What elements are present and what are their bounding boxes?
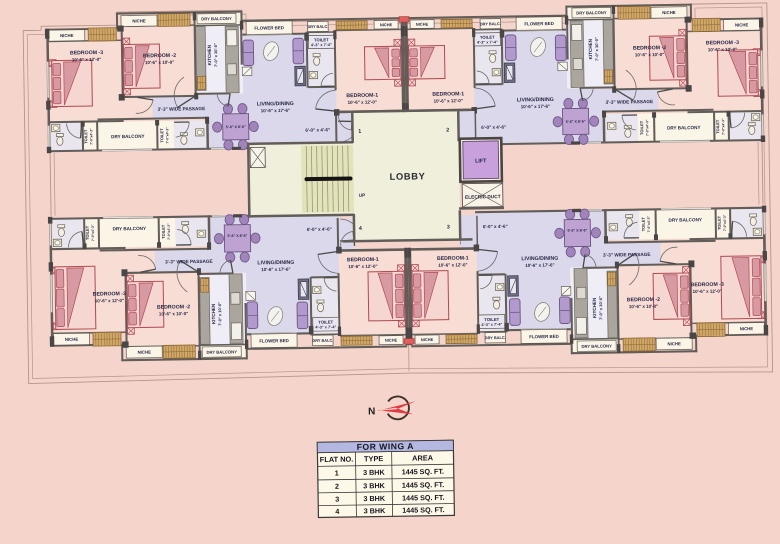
svg-text:FLAT NO.: FLAT NO. [320, 455, 354, 465]
svg-text:BEDROOM -2: BEDROOM -2 [627, 297, 660, 304]
svg-text:TOILET: TOILET [715, 119, 720, 134]
svg-text:LIVING/DINING: LIVING/DINING [257, 260, 294, 267]
svg-text:1445 SQ. FT.: 1445 SQ. FT. [402, 480, 444, 490]
svg-text:1: 1 [335, 468, 339, 477]
svg-text:1445 SQ. FT.: 1445 SQ. FT. [402, 467, 444, 477]
svg-text:NICHE: NICHE [380, 22, 393, 27]
svg-text:TOILET: TOILET [314, 37, 329, 42]
svg-text:1: 1 [358, 129, 361, 135]
svg-text:TOILET: TOILET [639, 120, 644, 135]
svg-text:NICHE: NICHE [60, 33, 74, 38]
svg-text:FLOWER BED: FLOWER BED [524, 21, 554, 26]
svg-text:10'-6" x 12'-0": 10'-6" x 12'-0" [348, 99, 378, 104]
svg-text:DRY BALCONY: DRY BALCONY [668, 217, 702, 223]
svg-text:DRY BALC.: DRY BALC. [480, 21, 501, 26]
svg-text:10'-6" x 12'-0": 10'-6" x 12'-0" [438, 262, 468, 267]
svg-text:7'-0"x4'-3": 7'-0"x4'-3" [91, 224, 95, 241]
svg-text:FOR WING A: FOR WING A [357, 441, 414, 452]
svg-text:LIVING/DINING: LIVING/DINING [517, 97, 554, 104]
svg-text:TOILET: TOILET [83, 129, 88, 144]
svg-text:3: 3 [447, 224, 450, 230]
svg-text:6'-0" x 4'-6": 6'-0" x 4'-6" [481, 125, 506, 130]
svg-text:FLOWER BED: FLOWER BED [254, 25, 284, 30]
svg-text:10'-6" x 10'-0": 10'-6" x 10'-0" [629, 304, 659, 309]
svg-text:TOILET: TOILET [318, 319, 333, 324]
svg-text:3 BHK: 3 BHK [364, 506, 387, 515]
svg-text:LIVING/DINING: LIVING/DINING [521, 256, 558, 263]
svg-text:TOILET: TOILET [161, 224, 166, 239]
svg-text:4'-3" x 7'-4": 4'-3" x 7'-4" [481, 323, 502, 327]
svg-text:7'-0"x4'-3": 7'-0"x4'-3" [165, 127, 169, 144]
svg-text:BEDROOM -3: BEDROOM -3 [93, 291, 126, 298]
svg-text:10'-6" x 12'-0": 10'-6" x 12'-0" [348, 264, 378, 269]
svg-text:NICHE: NICHE [735, 22, 749, 27]
svg-text:DRY BALCONY: DRY BALCONY [667, 125, 701, 131]
svg-text:4'-3" x 7'-4": 4'-3" x 7'-4" [311, 43, 332, 47]
svg-text:DRY BALC.: DRY BALC. [312, 338, 333, 343]
svg-text:3: 3 [335, 495, 339, 504]
svg-text:7'-0"x4'-3": 7'-0"x4'-3" [645, 119, 649, 136]
svg-text:DRY BALC.: DRY BALC. [307, 24, 328, 29]
svg-text:7'-0" x 10'-0": 7'-0" x 10'-0" [213, 43, 218, 67]
svg-text:NICHE: NICHE [421, 337, 434, 342]
svg-text:4: 4 [359, 226, 362, 232]
svg-text:NICHE: NICHE [662, 10, 676, 15]
svg-text:2: 2 [446, 127, 449, 133]
svg-text:DRY BALCONY: DRY BALCONY [113, 226, 147, 232]
svg-text:7'-0"x4'-3": 7'-0"x4'-3" [647, 215, 651, 232]
svg-text:DRY BALCONY: DRY BALCONY [111, 134, 145, 140]
svg-text:10'-6" x 17'-6": 10'-6" x 17'-6" [521, 104, 551, 109]
svg-text:DRY BALC.: DRY BALC. [485, 335, 506, 340]
svg-text:BEDROOM-1: BEDROOM-1 [432, 91, 464, 97]
svg-text:6'-0" x 4'-6": 6'-0" x 4'-6" [307, 227, 332, 232]
svg-text:TOILET: TOILET [717, 215, 722, 230]
svg-text:TOILET: TOILET [159, 128, 164, 143]
svg-text:NICHE: NICHE [416, 22, 429, 27]
svg-text:BEDROOM -3: BEDROOM -3 [70, 50, 103, 57]
svg-text:5'-6" X 8'-6": 5'-6" X 8'-6" [567, 228, 587, 232]
svg-text:NICHE: NICHE [138, 350, 152, 355]
svg-text:3 BHK: 3 BHK [363, 468, 386, 477]
svg-text:LIVING/DINING: LIVING/DINING [257, 101, 294, 108]
svg-text:7'-0"x4'-3": 7'-0"x4'-3" [89, 128, 93, 145]
svg-text:TOILET: TOILET [641, 217, 646, 232]
svg-text:10'-6" x 12'-0": 10'-6" x 12'-0" [708, 47, 738, 52]
svg-text:FLOWER BED: FLOWER BED [529, 334, 559, 339]
svg-text:4'-3" x 7'-4": 4'-3" x 7'-4" [315, 325, 336, 329]
svg-text:1445 SQ. FT.: 1445 SQ. FT. [402, 493, 444, 503]
svg-text:3'-3" WIDE PASSAGE: 3'-3" WIDE PASSAGE [165, 259, 213, 265]
svg-text:BEDROOM -2: BEDROOM -2 [157, 304, 190, 311]
svg-text:5'-6" X 8'-6": 5'-6" X 8'-6" [226, 125, 246, 129]
svg-text:TOILET: TOILET [480, 35, 495, 40]
svg-text:10'-6" x 10'-0": 10'-6" x 10'-0" [145, 60, 175, 65]
svg-text:2: 2 [335, 482, 339, 491]
svg-text:BEDROOM -2: BEDROOM -2 [633, 45, 666, 52]
svg-text:N: N [368, 406, 375, 417]
svg-text:7'-0" x 10'-0": 7'-0" x 10'-0" [594, 37, 599, 61]
svg-text:BEDROOM -3: BEDROOM -3 [691, 282, 724, 289]
svg-text:DRY BALCONY: DRY BALCONY [206, 349, 237, 354]
svg-text:BEDROOM -2: BEDROOM -2 [143, 53, 176, 60]
svg-text:KITCHEN: KITCHEN [211, 303, 216, 324]
svg-text:7'-0" x 10'-0": 7'-0" x 10'-0" [217, 302, 222, 326]
svg-text:10'-6" x 10'-0": 10'-6" x 10'-0" [635, 52, 665, 57]
svg-text:DRY BALCONY: DRY BALCONY [581, 343, 612, 348]
svg-text:NICHE: NICHE [385, 337, 398, 342]
svg-text:5'-6" X 8'-6": 5'-6" X 8'-6" [566, 120, 586, 124]
svg-text:TYPE: TYPE [364, 454, 384, 463]
svg-text:10'-6" x 12'-0": 10'-6" x 12'-0" [693, 289, 723, 294]
svg-text:TOILET: TOILET [85, 225, 90, 240]
svg-text:BEDROOM-1: BEDROOM-1 [346, 93, 378, 99]
svg-text:KITCHEN: KITCHEN [592, 297, 597, 318]
svg-text:NICHE: NICHE [65, 337, 79, 342]
svg-text:10'-6" x 17'-6": 10'-6" x 17'-6" [261, 108, 291, 113]
svg-text:TOILET: TOILET [484, 317, 499, 322]
svg-text:10'-6" x 17'-6": 10'-6" x 17'-6" [525, 262, 555, 267]
svg-text:FLOWER BED: FLOWER BED [259, 338, 289, 343]
svg-text:3'-3" WIDE PASSAGE: 3'-3" WIDE PASSAGE [606, 99, 654, 105]
svg-text:3 BHK: 3 BHK [363, 481, 386, 490]
svg-text:BEDROOM-1: BEDROOM-1 [437, 255, 469, 261]
svg-text:10'-6" x 12'-0": 10'-6" x 12'-0" [72, 57, 102, 62]
svg-text:BEDROOM -3: BEDROOM -3 [706, 40, 739, 47]
svg-text:LIFT: LIFT [475, 158, 487, 164]
svg-text:10'-6" x 17'-6": 10'-6" x 17'-6" [261, 267, 291, 272]
svg-text:KITCHEN: KITCHEN [207, 44, 212, 65]
svg-text:7'-0" x 10'-0": 7'-0" x 10'-0" [598, 296, 603, 320]
svg-text:NICHE: NICHE [667, 341, 681, 346]
svg-text:ELECRIC DUCT: ELECRIC DUCT [465, 194, 501, 201]
svg-text:LOBBY: LOBBY [390, 170, 426, 182]
svg-text:4: 4 [335, 507, 339, 516]
svg-text:3'-3" WIDE PASSAGE: 3'-3" WIDE PASSAGE [158, 106, 206, 112]
svg-text:NICHE: NICHE [740, 326, 754, 331]
svg-text:10'-6" x 12'-0": 10'-6" x 12'-0" [434, 98, 464, 103]
svg-text:7'-0"x4'-3": 7'-0"x4'-3" [721, 118, 725, 135]
svg-text:DRY BALCONY: DRY BALCONY [576, 10, 607, 15]
svg-text:5'-6" X 8'-6": 5'-6" X 8'-6" [227, 234, 247, 238]
svg-text:3 BHK: 3 BHK [363, 494, 386, 503]
svg-text:KITCHEN: KITCHEN [588, 38, 593, 59]
svg-text:NICHE: NICHE [132, 18, 146, 23]
svg-text:7'-0"x4'-3": 7'-0"x4'-3" [723, 214, 727, 231]
svg-text:4'-3" x 7'-4": 4'-3" x 7'-4" [477, 40, 498, 44]
svg-text:BEDROOM-1: BEDROOM-1 [347, 257, 379, 263]
svg-text:3'-3" WIDE PASSAGE: 3'-3" WIDE PASSAGE [603, 252, 651, 258]
svg-text:AREA: AREA [412, 453, 434, 462]
svg-text:1445 SQ. FT.: 1445 SQ. FT. [402, 505, 444, 515]
svg-text:6'-0" x 4'-6": 6'-0" x 4'-6" [305, 127, 330, 132]
svg-text:10'-6" x 12'-0": 10'-6" x 12'-0" [95, 298, 125, 303]
svg-text:6'-0" x 4'-6": 6'-0" x 4'-6" [483, 224, 508, 229]
svg-text:UP: UP [359, 193, 365, 198]
svg-text:DRY BALCONY: DRY BALCONY [201, 16, 232, 21]
svg-text:10'-6" x 10'-0": 10'-6" x 10'-0" [159, 311, 189, 316]
svg-text:7'-0"x4'-3": 7'-0"x4'-3" [167, 223, 171, 240]
